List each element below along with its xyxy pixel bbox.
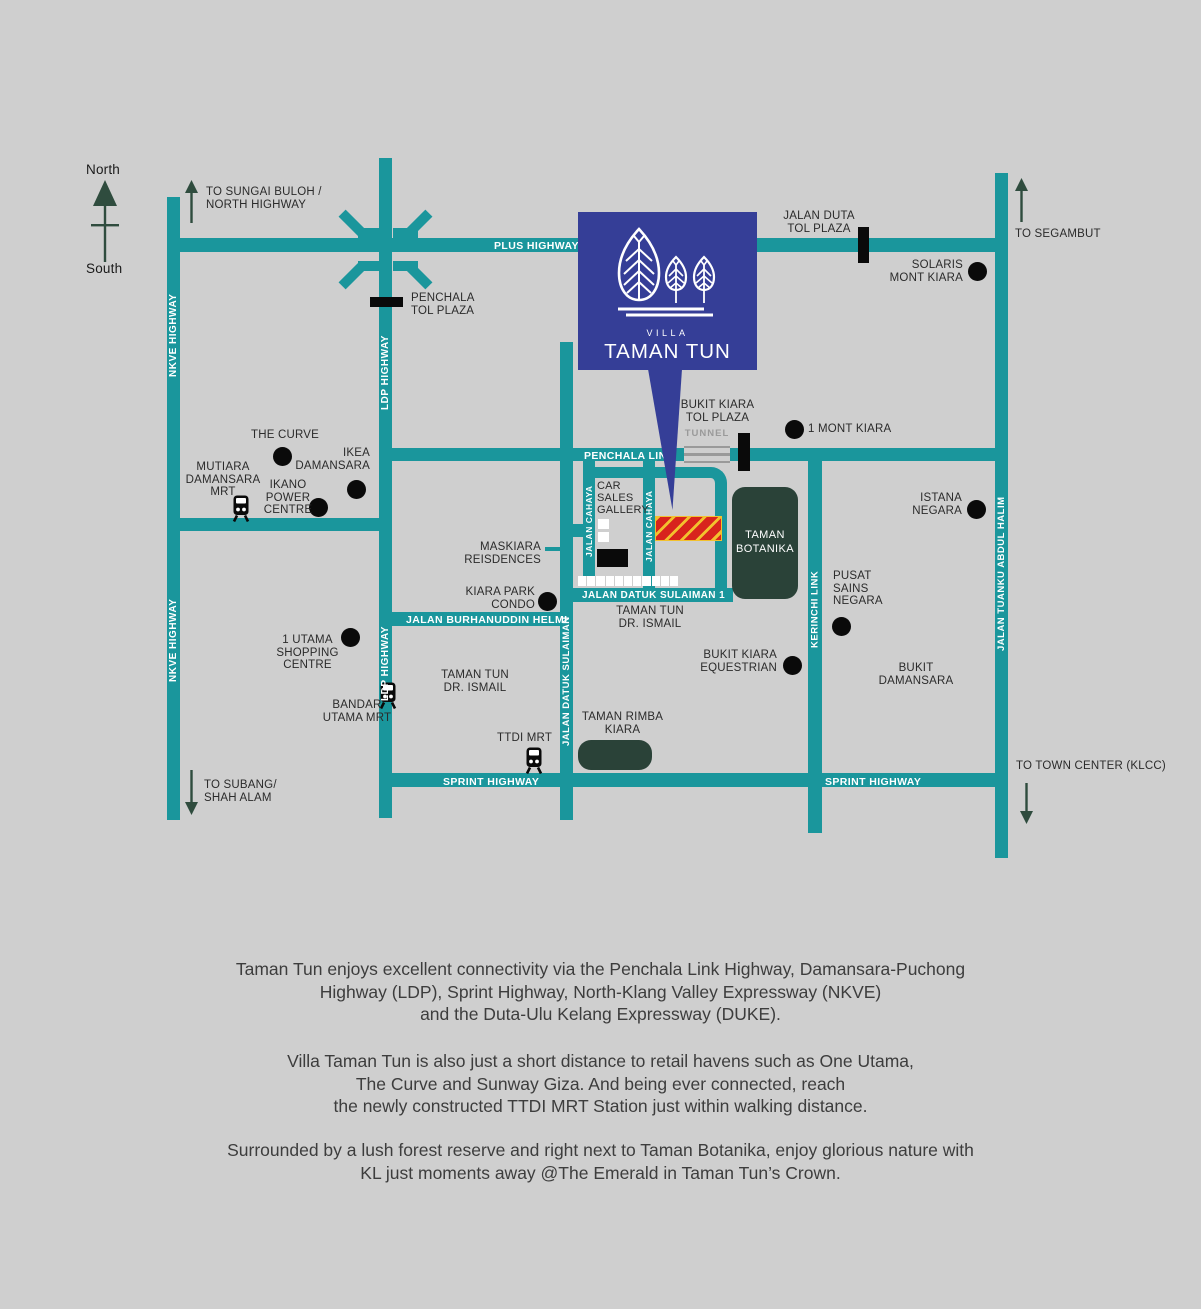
to-subang-label: TO SUBANG/ SHAH ALAM bbox=[204, 779, 277, 804]
pusat-sains-negara-dot bbox=[832, 617, 851, 636]
nkve-highway-label-top: NKVE HIGHWAY bbox=[167, 288, 180, 383]
ttdi-mrt-label: TTDI MRT bbox=[497, 732, 552, 745]
road-jalan-datuk-sulaiman bbox=[560, 342, 573, 820]
villa-name: TAMAN TUN bbox=[604, 340, 731, 364]
one-utama-label: 1 UTAMA SHOPPING CENTRE bbox=[255, 634, 360, 672]
plus-highway-label: PLUS HIGHWAY bbox=[494, 240, 579, 252]
mrt-train-icon bbox=[232, 495, 250, 522]
kiara-park-condo-label: KIARA PARK CONDO bbox=[465, 586, 535, 611]
ikea-damansara-dot bbox=[347, 480, 366, 499]
arrow-down-icon bbox=[184, 770, 199, 816]
jalan-burhanuddin-helmi-label: JALAN BURHANUDDIN HELMI bbox=[406, 614, 567, 626]
taman-tun-dr-ismail-label-east: TAMAN TUN DR. ISMAIL bbox=[610, 605, 690, 630]
villa-word: VILLA bbox=[646, 328, 688, 338]
interchange-ramp bbox=[339, 263, 366, 290]
to-segambut-label: TO SEGAMBUT bbox=[1015, 228, 1101, 241]
tunnel-label: TUNNEL bbox=[684, 429, 730, 439]
bukit-kiara-equestrian-label: BUKIT KIARA EQUESTRIAN bbox=[700, 649, 777, 674]
location-map: TUNNEL PLUS HIGHWAY PENCHALA LINK SPRINT… bbox=[0, 0, 1201, 1309]
istana-negara-label: ISTANA NEGARA bbox=[912, 492, 962, 517]
arrow-down-icon bbox=[1019, 783, 1034, 825]
compass-south-label: South bbox=[86, 262, 122, 277]
to-town-center-label: TO TOWN CENTER (KLCC) bbox=[1016, 760, 1166, 773]
villa-trees-logo-icon bbox=[616, 227, 720, 319]
ldp-highway-label-top: LDP HIGHWAY bbox=[379, 332, 392, 414]
description-paragraph-2: Villa Taman Tun is also just a short dis… bbox=[0, 1050, 1201, 1118]
interchange-ramp bbox=[406, 263, 433, 290]
interchange-ramp bbox=[406, 210, 433, 237]
road-damansara-block-south bbox=[167, 518, 392, 531]
ikea-damansara-label: IKEA DAMANSARA bbox=[295, 447, 370, 472]
arrow-up-icon bbox=[184, 179, 199, 223]
building-square bbox=[598, 532, 609, 542]
istana-negara-dot bbox=[967, 500, 986, 519]
to-sungai-buloh-label: TO SUNGAI BULOH / NORTH HIGHWAY bbox=[206, 186, 322, 211]
the-curve-label: THE CURVE bbox=[250, 429, 320, 442]
sprint-highway-label-right: SPRINT HIGHWAY bbox=[825, 776, 921, 788]
arrow-up-icon bbox=[1014, 177, 1029, 222]
jalan-tuanku-abdul-halim-label: JALAN TUANKU ABDUL HALIM bbox=[995, 500, 1008, 648]
ldp-highway-label-bottom: LDP HIGHWAY bbox=[379, 628, 392, 700]
penchala-tol-plaza-bar bbox=[370, 297, 403, 307]
taman-tun-dr-ismail-label-west: TAMAN TUN DR. ISMAIL bbox=[435, 669, 515, 694]
description-paragraph-3: Surrounded by a lush forest reserve and … bbox=[0, 1139, 1201, 1184]
road-connector-stub bbox=[560, 524, 585, 537]
bandar-utama-mrt-label: BANDAR UTAMA MRT bbox=[317, 699, 397, 724]
mrt-train-icon bbox=[525, 747, 543, 774]
pusat-sains-negara-label: PUSAT SAINS NEGARA bbox=[833, 570, 883, 608]
taman-rimba-kiara-area bbox=[578, 740, 652, 770]
jalan-duta-tol-plaza-bar bbox=[858, 227, 869, 263]
maskiara-pointer-line bbox=[545, 547, 562, 551]
mutiara-damansara-mrt-label: MUTIARA DAMANSARA MRT bbox=[184, 461, 262, 499]
one-mont-kiara-label: 1 MONT KIARA bbox=[808, 423, 891, 436]
car-sales-gallery-building bbox=[597, 549, 628, 567]
jalan-duta-tol-plaza-label: JALAN DUTA TOL PLAZA bbox=[783, 210, 855, 235]
solaris-mont-kiara-dot bbox=[968, 262, 987, 281]
penchala-tol-plaza-label: PENCHALA TOL PLAZA bbox=[411, 292, 475, 317]
bukit-kiara-tol-plaza-bar bbox=[738, 433, 750, 471]
jalan-datuk-sulaiman-1-label: JALAN DATUK SULAIMAN 1 bbox=[582, 590, 725, 601]
taman-botanika-area: TAMAN BOTANIKA bbox=[732, 487, 798, 599]
jalan-datuk-sulaiman-label: JALAN DATUK SULAIMAN bbox=[560, 616, 573, 746]
building-square bbox=[598, 519, 609, 529]
maskiara-residences-label: MASKIARA REISDENCES bbox=[464, 541, 541, 566]
sprint-highway-label-left: SPRINT HIGHWAY bbox=[443, 776, 539, 788]
bukit-kiara-tol-plaza-label: BUKIT KIARA TOL PLAZA bbox=[680, 399, 755, 424]
ikano-power-centre-label: IKANO POWER CENTRE bbox=[253, 479, 323, 517]
penchala-link-label: PENCHALA LINK bbox=[584, 450, 675, 462]
description-paragraph-1: Taman Tun enjoys excellent connectivity … bbox=[0, 958, 1201, 1026]
compass-north-label: North bbox=[86, 163, 120, 178]
interchange-ramp bbox=[339, 210, 366, 237]
bukit-damansara-label: BUKIT DAMANSARA bbox=[876, 662, 956, 687]
car-sales-gallery-label: CAR SALES GALLERY bbox=[597, 480, 649, 516]
jalan-cahaya-left-label: JALAN CAHAYA bbox=[583, 474, 595, 568]
taman-rimba-kiara-label: TAMAN RIMBA KIARA bbox=[580, 711, 665, 736]
house-row bbox=[578, 576, 678, 586]
kiara-park-condo-dot bbox=[538, 592, 557, 611]
solaris-mont-kiara-label: SOLARIS MONT KIARA bbox=[890, 259, 963, 284]
the-curve-dot bbox=[273, 447, 292, 466]
kerinchi-link-label: KERINCHI LINK bbox=[808, 570, 822, 648]
tunnel-section bbox=[684, 446, 730, 463]
one-mont-kiara-dot bbox=[785, 420, 804, 439]
bukit-kiara-equestrian-dot bbox=[783, 656, 802, 675]
villa-taman-tun-badge: VILLA TAMAN TUN bbox=[578, 212, 757, 370]
villa-site-hatched bbox=[655, 516, 722, 541]
nkve-highway-label-bottom: NKVE HIGHWAY bbox=[167, 596, 180, 684]
